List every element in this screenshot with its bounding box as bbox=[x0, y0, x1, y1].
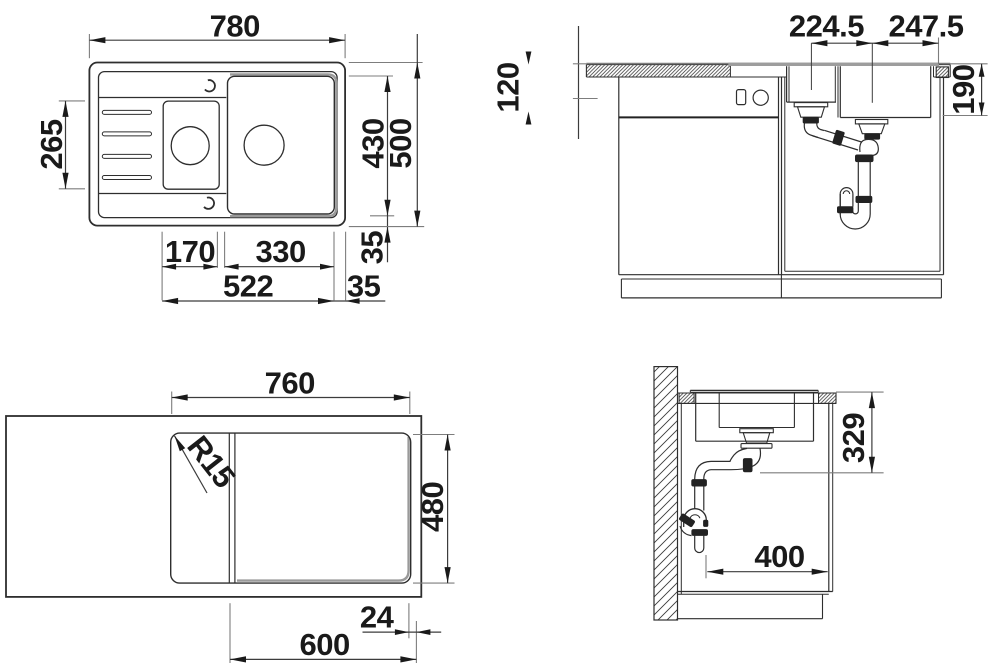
svg-text:35: 35 bbox=[354, 231, 389, 265]
svg-text:120: 120 bbox=[491, 62, 526, 112]
svg-text:600: 600 bbox=[299, 627, 349, 662]
svg-text:170: 170 bbox=[165, 234, 215, 269]
svg-text:190: 190 bbox=[946, 64, 981, 114]
svg-text:522: 522 bbox=[223, 268, 273, 303]
svg-text:480: 480 bbox=[415, 482, 450, 532]
svg-text:35: 35 bbox=[347, 268, 381, 303]
svg-text:224.5: 224.5 bbox=[789, 9, 864, 44]
svg-text:780: 780 bbox=[210, 9, 260, 44]
svg-text:265: 265 bbox=[34, 119, 69, 169]
svg-text:500: 500 bbox=[383, 118, 418, 168]
svg-text:247.5: 247.5 bbox=[888, 9, 963, 44]
svg-text:24: 24 bbox=[360, 599, 395, 634]
svg-text:760: 760 bbox=[265, 366, 315, 401]
svg-text:330: 330 bbox=[255, 234, 305, 269]
svg-text:400: 400 bbox=[754, 539, 804, 574]
svg-text:329: 329 bbox=[836, 413, 871, 463]
